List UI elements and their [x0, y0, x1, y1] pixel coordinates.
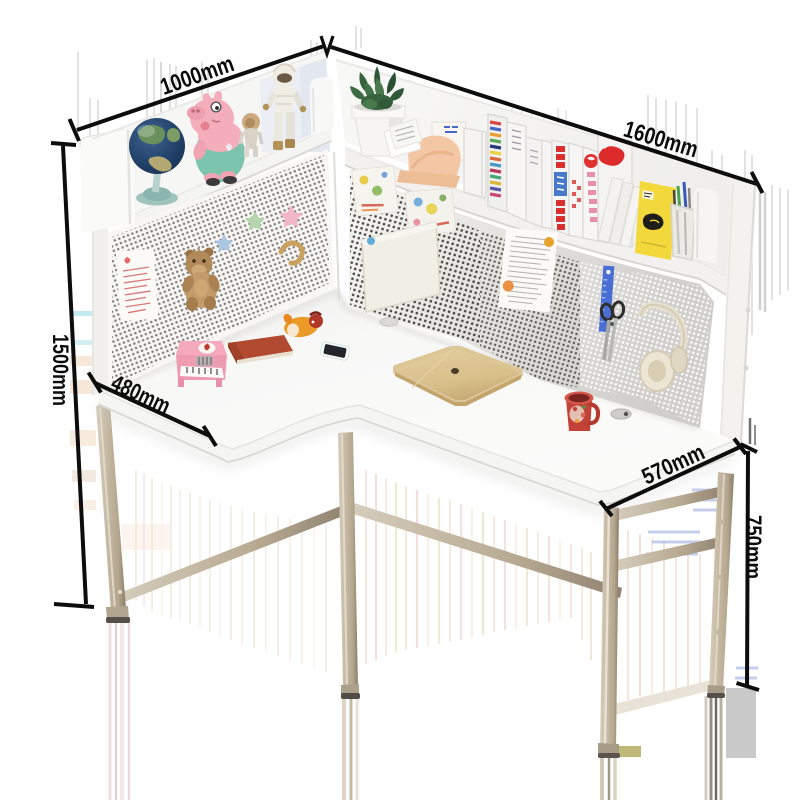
- svg-text:1500mm: 1500mm: [48, 334, 73, 406]
- svg-text:750mm: 750mm: [741, 515, 766, 579]
